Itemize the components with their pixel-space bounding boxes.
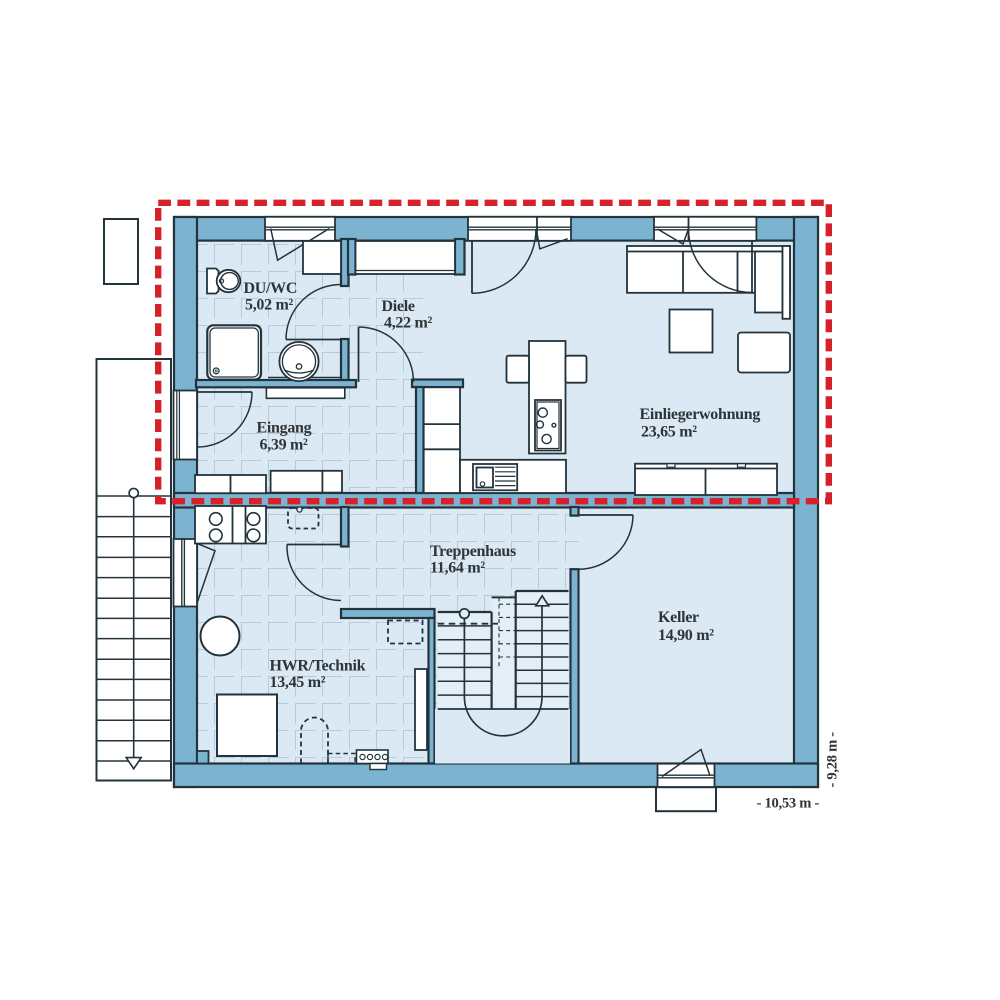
svg-text:DU/WC: DU/WC xyxy=(244,280,298,297)
svg-text:4,22 m²: 4,22 m² xyxy=(384,315,433,332)
svg-text:13,45 m²: 13,45 m² xyxy=(270,674,326,691)
svg-text:Diele: Diele xyxy=(382,298,415,315)
svg-text:Keller: Keller xyxy=(658,609,699,626)
svg-text:Einliegerwohnung: Einliegerwohnung xyxy=(640,406,761,423)
svg-text:14,90 m²: 14,90 m² xyxy=(658,627,714,644)
svg-text:6,39 m²: 6,39 m² xyxy=(260,437,309,454)
svg-text:HWR/Technik: HWR/Technik xyxy=(270,658,366,675)
svg-text:23,65 m²: 23,65 m² xyxy=(641,424,697,441)
svg-text:11,64 m²: 11,64 m² xyxy=(430,560,485,577)
svg-text:Eingang: Eingang xyxy=(257,420,312,437)
svg-text:- 10,53 m -: - 10,53 m - xyxy=(757,796,820,812)
svg-text:5,02 m²: 5,02 m² xyxy=(245,297,294,314)
svg-text:Treppenhaus: Treppenhaus xyxy=(430,543,516,560)
svg-text:- 9,28 m -: - 9,28 m - xyxy=(825,732,841,788)
